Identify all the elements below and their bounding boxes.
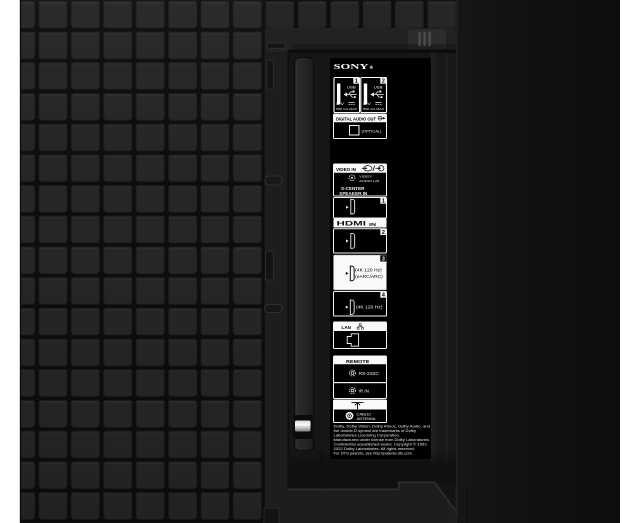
svg-text:RS-232C: RS-232C [359, 371, 380, 376]
svg-text:(4K 120 Hz): (4K 120 Hz) [356, 304, 383, 309]
svg-text:CABLE/: CABLE/ [357, 412, 372, 416]
svg-text:500 mA MAX: 500 mA MAX [336, 107, 357, 111]
svg-text:(4K 120 Hz): (4K 120 Hz) [355, 268, 382, 273]
svg-text:500 mA MAX: 500 mA MAX [363, 107, 384, 111]
svg-text:USB: USB [347, 85, 357, 89]
svg-text:For DTS patents, see http://pa: For DTS patents, see http://patents.dts.… [334, 450, 414, 455]
svg-text:2: 2 [382, 79, 385, 85]
svg-text:ANTENNA: ANTENNA [357, 417, 377, 421]
svg-text:DIGITAL AUDIO OUT: DIGITAL AUDIO OUT [336, 116, 376, 121]
svg-text:3: 3 [382, 257, 385, 263]
svg-text:REMOTE: REMOTE [346, 359, 370, 365]
svg-text:AUDIO L/R: AUDIO L/R [359, 179, 380, 183]
svg-text:HDMI: HDMI [337, 221, 367, 228]
svg-text:4: 4 [382, 293, 385, 299]
svg-text:VIDEO IN: VIDEO IN [336, 167, 356, 172]
svg-text:1: 1 [382, 199, 385, 205]
svg-text:SONY: SONY [334, 62, 370, 71]
svg-text:1: 1 [355, 79, 358, 85]
svg-text:2: 2 [382, 230, 385, 236]
svg-text:USB: USB [374, 85, 384, 89]
svg-text:SPEAKER IN: SPEAKER IN [339, 191, 368, 196]
svg-text:IR IN: IR IN [359, 389, 370, 394]
svg-text:(eARC/ARC): (eARC/ARC) [355, 274, 383, 279]
svg-text:VIDEO/: VIDEO/ [359, 174, 372, 178]
svg-text:LAN: LAN [342, 325, 352, 330]
svg-text:IN: IN [369, 222, 377, 227]
svg-text:(OPTICAL): (OPTICAL) [362, 130, 382, 134]
